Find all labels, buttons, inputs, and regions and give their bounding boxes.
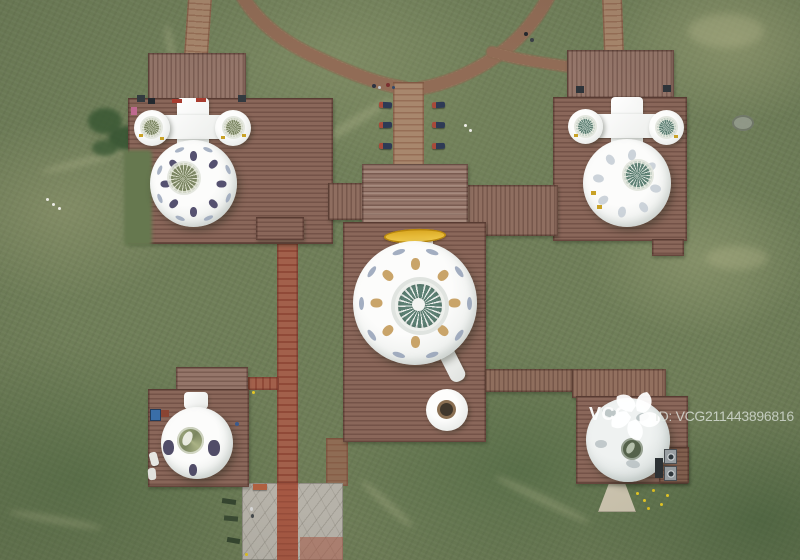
- flower: [647, 507, 650, 510]
- platform-center-stairs: [362, 164, 468, 226]
- person: [250, 507, 253, 511]
- dome-blotch: [595, 440, 607, 448]
- rooftop-equipment: [148, 98, 155, 104]
- flower: [252, 391, 255, 394]
- gold-trim: [674, 135, 678, 138]
- person: [372, 84, 376, 88]
- cupola: [576, 117, 595, 136]
- sheep: [52, 203, 55, 206]
- gold-trim: [574, 134, 578, 137]
- aerial-photo-grassland: VCG ID: VCG211443896816: [0, 0, 800, 560]
- walkway-lower-right: [485, 369, 574, 392]
- gold-trim: [591, 191, 596, 195]
- rooftop-equipment: [663, 85, 671, 92]
- white-lounger: [147, 468, 156, 481]
- feather-motif: [174, 214, 185, 221]
- person: [524, 32, 528, 36]
- plaza-red-stripe: [277, 483, 298, 560]
- rooftop-equipment: [576, 86, 584, 93]
- equipment-dark: [655, 458, 663, 478]
- dome-motif: [411, 336, 420, 348]
- central-boardwalk: [393, 82, 424, 170]
- stair-path-red: [277, 236, 298, 484]
- rooftop-equipment: [137, 95, 145, 102]
- lounger: [432, 143, 445, 149]
- feather-motif: [224, 164, 232, 175]
- lounger: [379, 143, 392, 149]
- ac-unit: [664, 449, 677, 464]
- sheep: [46, 198, 49, 201]
- dome-motif: [637, 200, 650, 214]
- dome-motif: [592, 174, 604, 184]
- yurt-dome-upper-right: [583, 139, 671, 227]
- yurt-dome-upper-left: [150, 140, 237, 227]
- dome-motif: [189, 464, 197, 476]
- flower: [666, 494, 669, 497]
- lounger: [379, 102, 392, 109]
- feather-motif: [155, 164, 162, 175]
- bench: [253, 484, 267, 490]
- dome-motif: [411, 258, 420, 270]
- flower: [643, 499, 646, 502]
- lounger: [432, 122, 445, 128]
- stove-ring: [440, 403, 453, 416]
- sheep: [469, 129, 472, 132]
- lounger: [379, 122, 392, 128]
- yurt-small-central: [426, 389, 468, 431]
- grass-notch: [124, 150, 152, 246]
- gold-trim: [597, 205, 602, 209]
- platform-upper-left-extension: [148, 53, 246, 100]
- person: [530, 38, 534, 42]
- feather-motif: [202, 145, 213, 152]
- ac-fan: [667, 453, 675, 461]
- dome-motif: [649, 184, 661, 194]
- dome-motif: [617, 206, 627, 218]
- rooftop-equipment: [238, 95, 246, 102]
- cupola: [624, 161, 652, 189]
- person: [386, 83, 390, 87]
- gold-trim: [221, 136, 225, 139]
- dome-motif: [448, 299, 460, 308]
- dome-motif: [208, 440, 220, 456]
- yurt-dome-central: [353, 241, 477, 365]
- feather-motif: [203, 214, 214, 222]
- flower: [660, 503, 663, 506]
- plaza-red-patch: [300, 537, 343, 560]
- person: [392, 86, 395, 89]
- yurt-dome-bottom-left: [161, 407, 233, 479]
- boardwalk-straight-top-left: [184, 0, 212, 58]
- dome-motif: [627, 149, 637, 161]
- gold-trim: [139, 134, 143, 137]
- feather-motif: [224, 192, 231, 203]
- dome-motif: [380, 268, 395, 283]
- gold-trim: [242, 134, 246, 137]
- vestibule-red-trim: [172, 99, 182, 103]
- sheep: [58, 207, 61, 210]
- dome-motif: [604, 153, 617, 167]
- platform-step: [652, 239, 684, 256]
- dome-motif: [435, 268, 450, 283]
- person: [235, 422, 239, 426]
- dome-motif: [370, 299, 382, 308]
- boardwalk-straight-top-right: [602, 0, 624, 54]
- stair-path-landing: [256, 217, 304, 240]
- sheep: [464, 124, 467, 127]
- person: [378, 86, 381, 89]
- cupola: [142, 118, 161, 137]
- cupola: [169, 163, 199, 193]
- red-crate: [161, 410, 169, 417]
- stroller: [251, 514, 254, 518]
- dome-motif: [435, 323, 450, 338]
- watermark-logo-text: VCG: [589, 404, 630, 425]
- feather-motif: [156, 193, 164, 204]
- lounger: [432, 102, 445, 109]
- boardwalk-curve-left: [240, 0, 404, 88]
- feather-motif: [174, 146, 185, 154]
- vestibule-red-trim: [196, 98, 206, 102]
- dome-motif: [380, 323, 395, 338]
- south-walkway: [326, 438, 348, 486]
- blue-box: [150, 409, 161, 421]
- watermark-id-text: ID: VCG211443896816: [655, 408, 794, 424]
- flower: [652, 489, 655, 492]
- skylight-hub: [412, 298, 425, 311]
- dome-motif: [163, 440, 174, 455]
- pink-object: [131, 107, 137, 115]
- ac-fan: [667, 470, 675, 478]
- red-connector: [248, 377, 279, 390]
- flower: [245, 553, 248, 556]
- flower: [636, 492, 639, 495]
- dome-blotch: [625, 459, 640, 469]
- cupola: [224, 118, 243, 137]
- ac-unit: [664, 466, 677, 481]
